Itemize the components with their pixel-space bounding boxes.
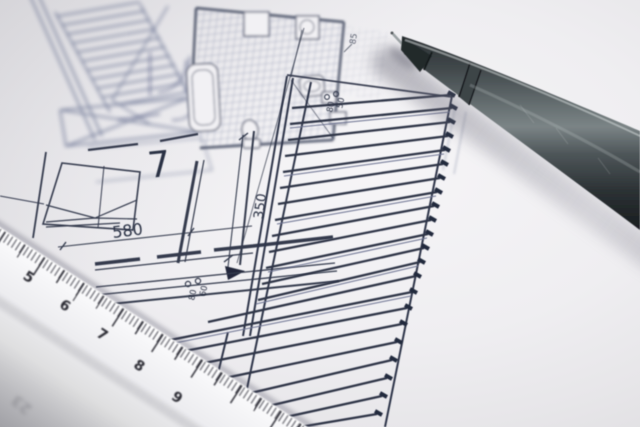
fineliner-pen (0, 0, 640, 427)
pen-barrel (402, 36, 640, 230)
photo-scene: 7 580 350 85 80 50 80 60 5 6 7 8 9 (0, 0, 640, 427)
